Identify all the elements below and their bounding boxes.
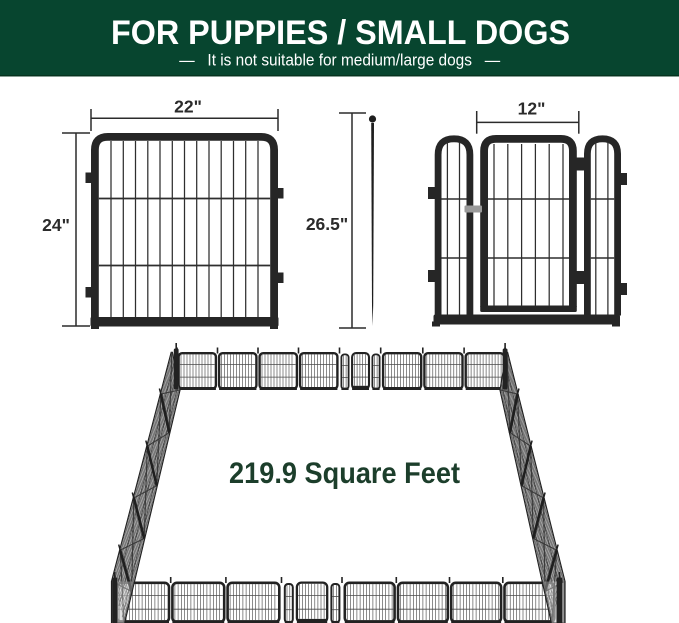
svg-text:— It is not suitable for med: — It is not suitable for medium/large do…	[179, 52, 501, 70]
svg-text:FOR PUPPIES / SMALL DOGS: FOR PUPPIES / SMALL DOGS	[111, 14, 570, 52]
svg-text:24": 24"	[42, 215, 70, 235]
svg-text:12": 12"	[518, 99, 546, 119]
svg-text:22": 22"	[174, 97, 202, 117]
svg-text:26.5": 26.5"	[306, 214, 348, 234]
svg-text:219.9 Square Feet: 219.9 Square Feet	[229, 457, 460, 490]
